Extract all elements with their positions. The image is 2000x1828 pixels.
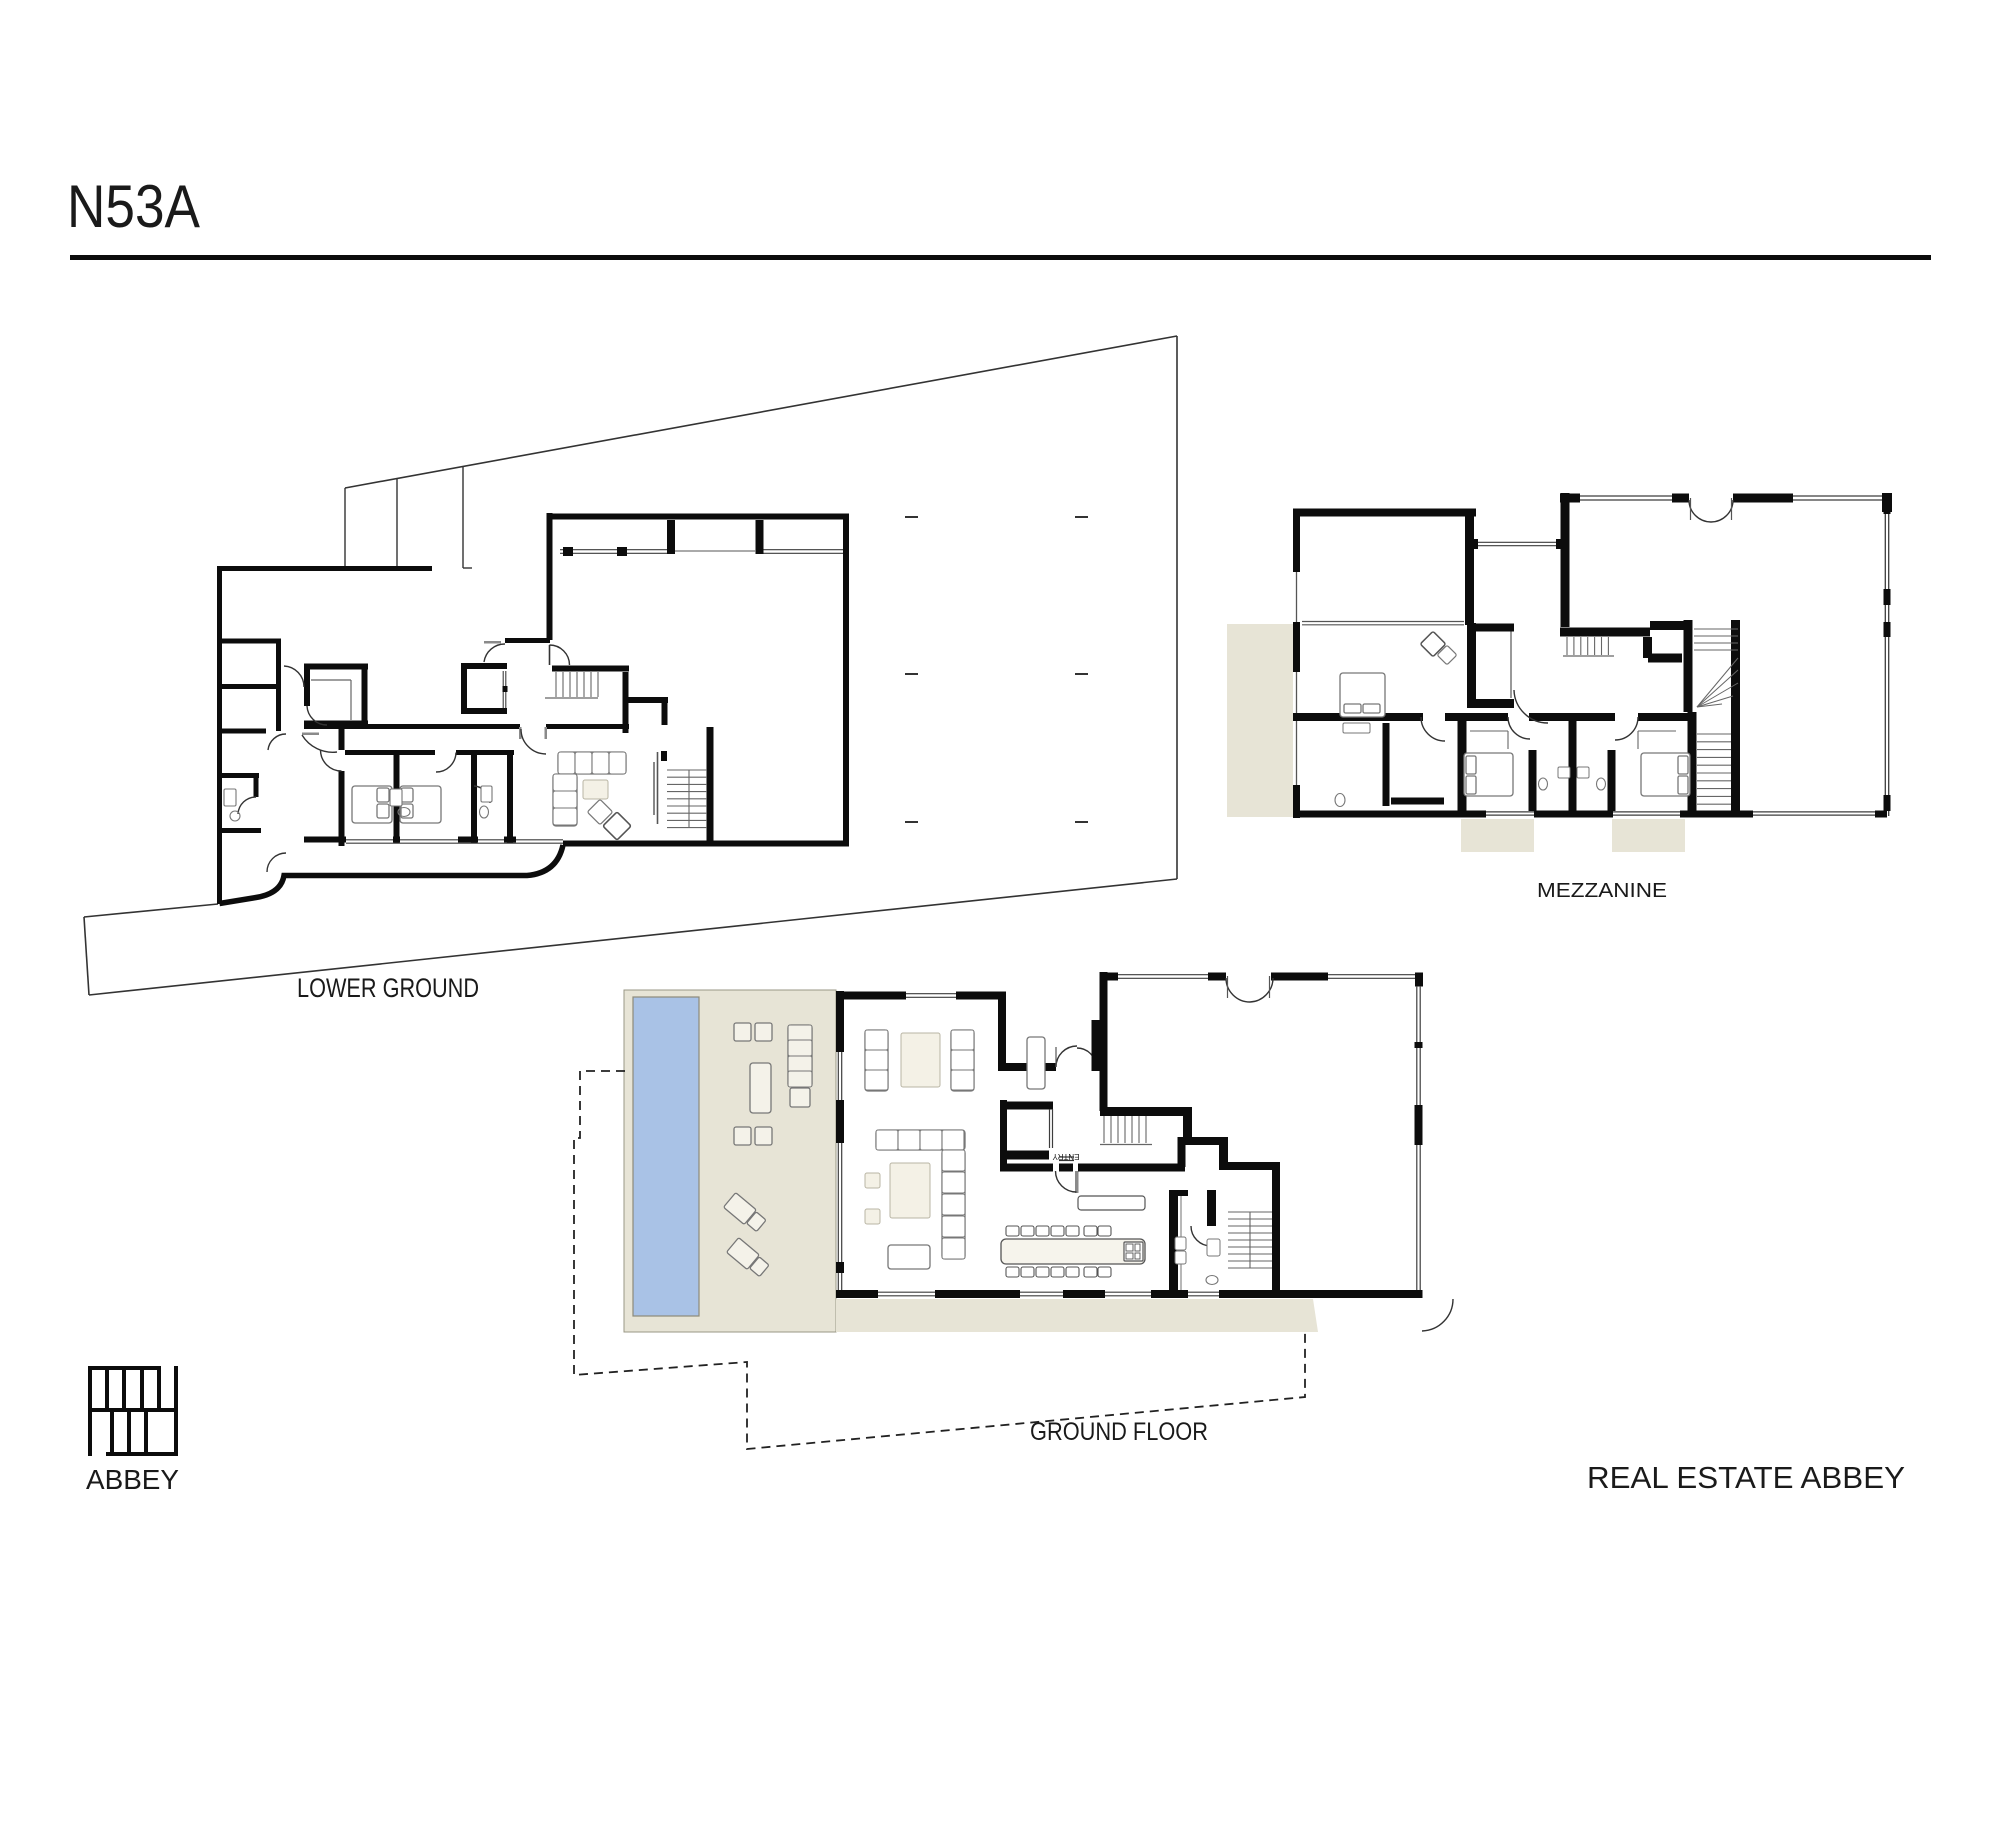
svg-text:GROUND FLOOR: GROUND FLOOR bbox=[1030, 1418, 1208, 1446]
svg-text:ABBEY: ABBEY bbox=[86, 1464, 179, 1495]
svg-text:REAL ESTATE ABBEY: REAL ESTATE ABBEY bbox=[1587, 1460, 1905, 1495]
svg-text:N53A: N53A bbox=[67, 173, 200, 240]
svg-text:LOWER GROUND: LOWER GROUND bbox=[297, 973, 479, 1003]
svg-text:MEZZANINE: MEZZANINE bbox=[1537, 880, 1667, 902]
svg-text:ENTRY: ENTRY bbox=[1052, 1152, 1080, 1161]
